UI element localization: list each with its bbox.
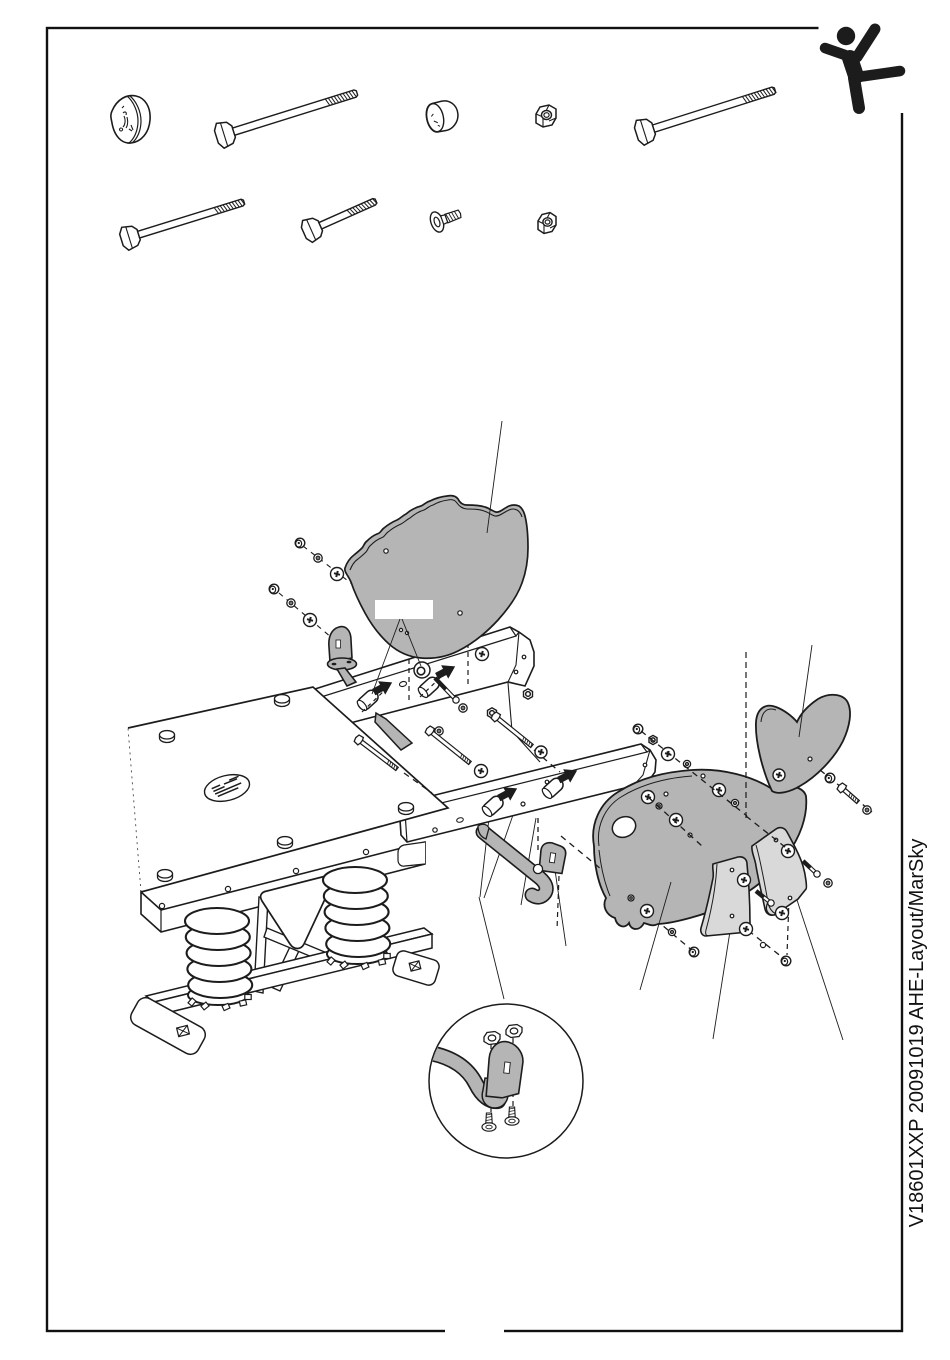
svg-text:V18601XXP 20091019 AHE-Layout/: V18601XXP 20091019 AHE-Layout/MarSky xyxy=(906,839,928,1228)
